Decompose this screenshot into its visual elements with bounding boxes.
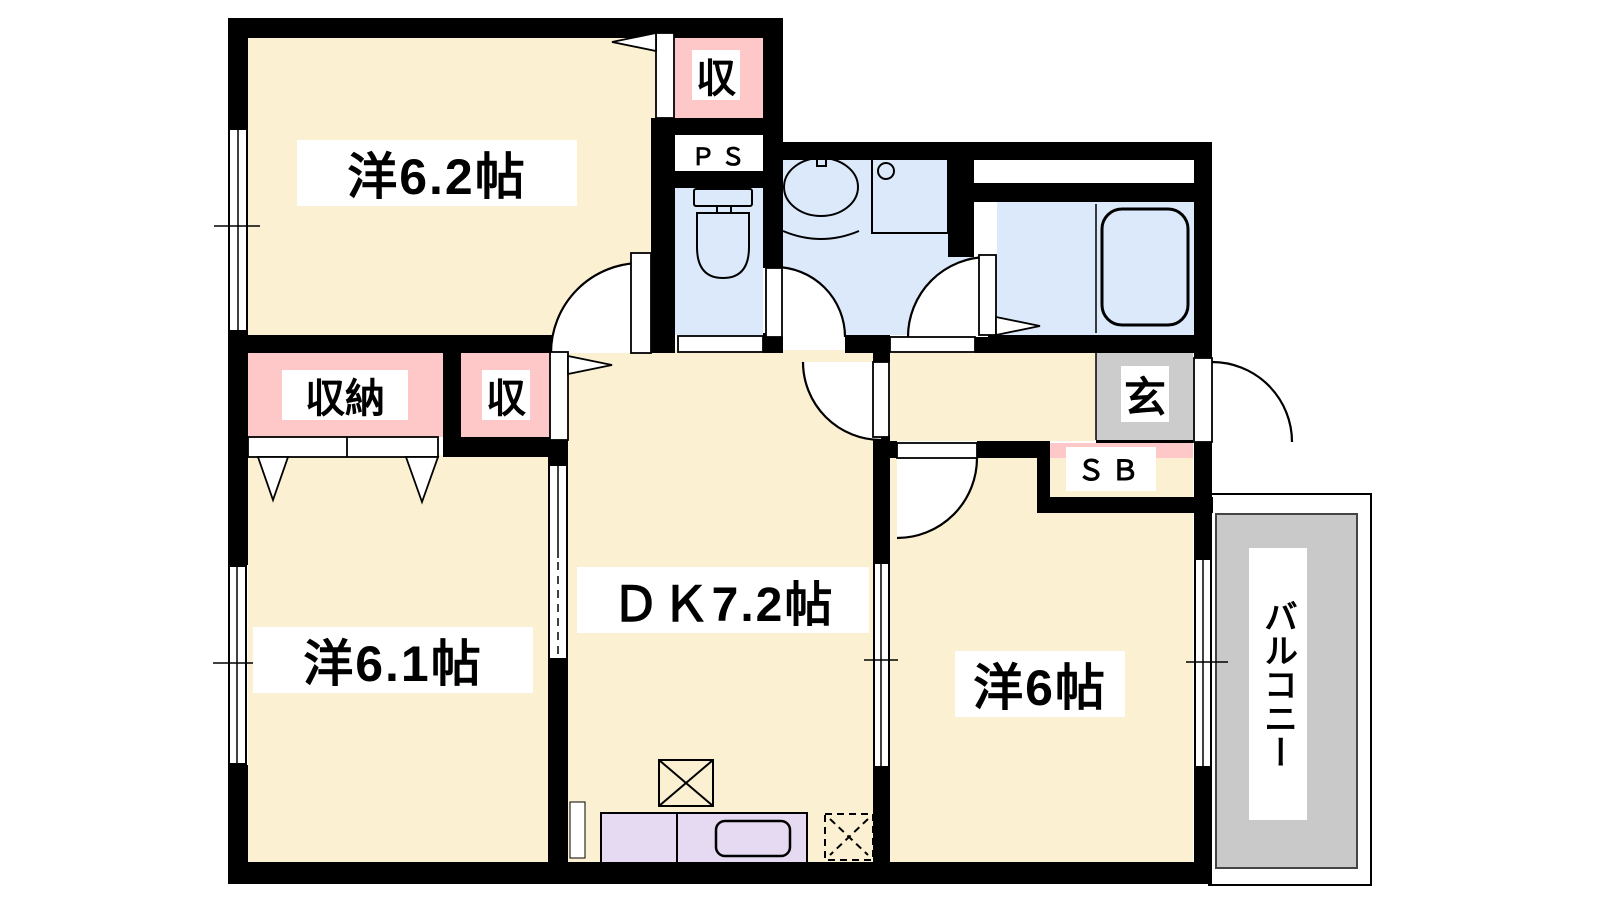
label-room-6-1: 洋6.1帖	[253, 627, 533, 693]
label-shoebox: ＳＢ	[1066, 447, 1156, 491]
washbasin-fixture	[783, 151, 859, 239]
label-dk: ＤＫ7.2帖	[577, 567, 869, 633]
fixtures-overlay	[0, 0, 1600, 900]
label-pipe-space: ＰＳ	[682, 140, 760, 168]
label-balcony: バルコニー	[1249, 548, 1307, 820]
door-swings	[551, 257, 1292, 538]
label-closet-mid: 収	[482, 370, 530, 420]
kitchen-sink	[677, 812, 790, 864]
washing-machine-area	[872, 157, 948, 233]
label-entrance: 玄	[1121, 366, 1169, 422]
label-room-6-2: 洋6.2帖	[297, 140, 577, 206]
label-closet-top: 収	[692, 50, 740, 100]
floor-plan: 洋6.2帖 収 ＰＳ 収納 収 ＤＫ7.2帖 洋6.1帖 洋6帖 玄 ＳＢ バル…	[0, 0, 1600, 900]
stove-box	[659, 760, 713, 806]
label-storage: 収納	[282, 370, 408, 420]
bathtub-fixture	[1096, 204, 1188, 333]
label-room-6: 洋6帖	[955, 651, 1125, 717]
refrigerator-space	[825, 814, 873, 860]
toilet-fixture	[694, 189, 752, 278]
